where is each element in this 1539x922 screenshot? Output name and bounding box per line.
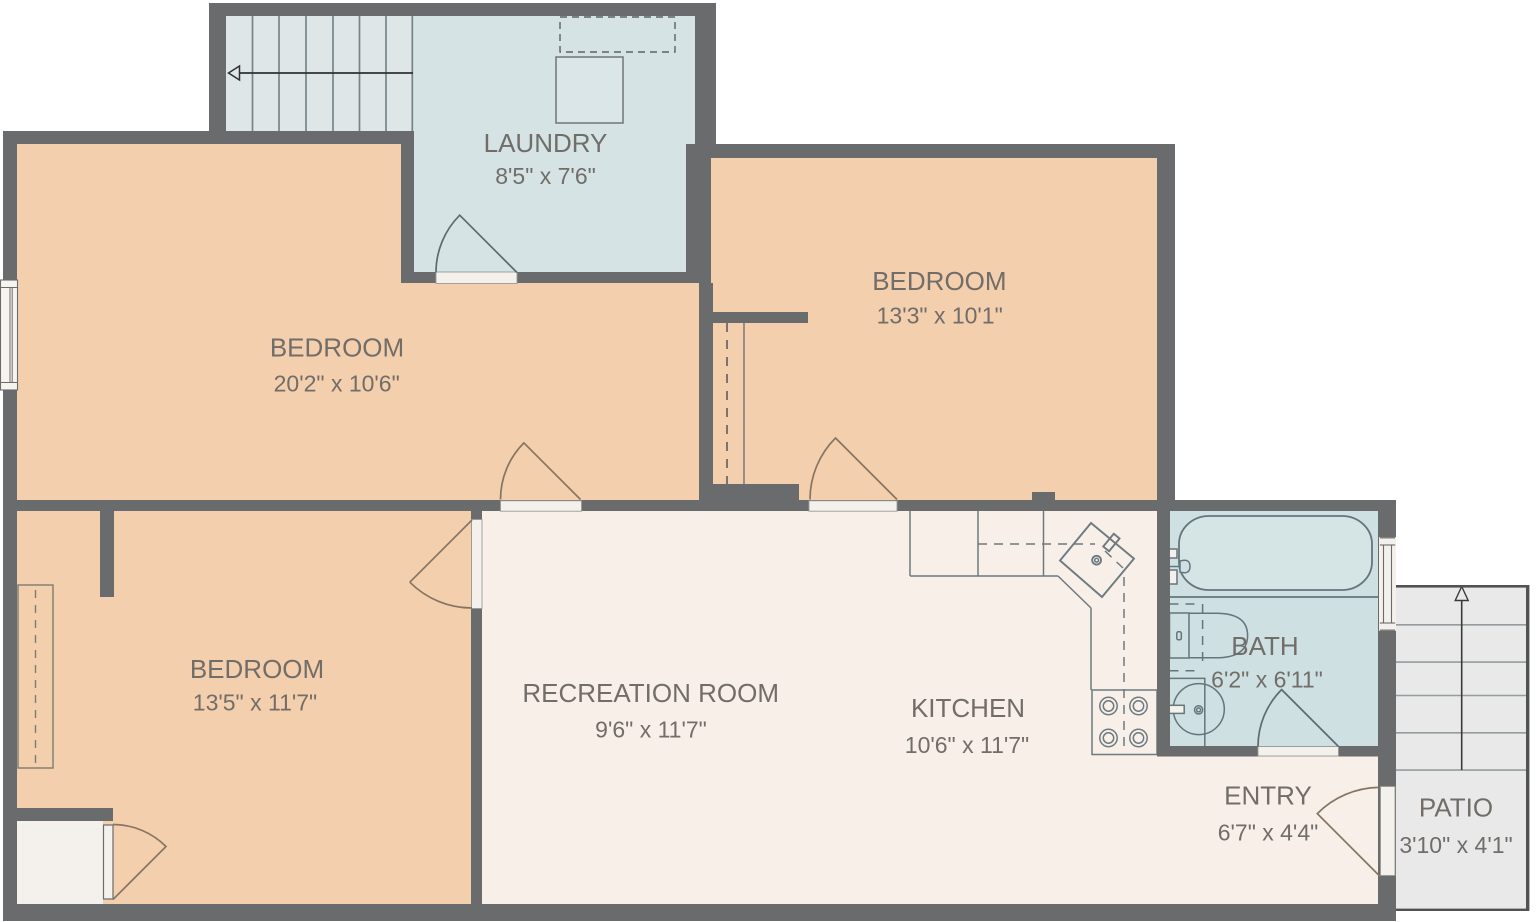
svg-text:PATIO: PATIO — [1419, 792, 1493, 822]
svg-text:KITCHEN: KITCHEN — [911, 693, 1025, 723]
svg-text:20'2" x 10'6": 20'2" x 10'6" — [274, 371, 400, 397]
svg-text:6'7" x 4'4": 6'7" x 4'4" — [1218, 820, 1319, 846]
svg-text:BATH: BATH — [1231, 631, 1298, 661]
svg-text:BEDROOM: BEDROOM — [872, 266, 1006, 296]
svg-text:13'5" x 11'7": 13'5" x 11'7" — [193, 690, 317, 716]
svg-text:10'6" x 11'7": 10'6" x 11'7" — [905, 732, 1029, 758]
svg-text:6'2" x 6'11": 6'2" x 6'11" — [1211, 667, 1323, 693]
svg-text:BEDROOM: BEDROOM — [270, 332, 404, 362]
svg-text:9'6" x 11'7": 9'6" x 11'7" — [595, 716, 707, 742]
svg-text:ENTRY: ENTRY — [1224, 781, 1312, 811]
svg-text:8'5" x 7'6": 8'5" x 7'6" — [495, 163, 596, 189]
svg-text:13'3" x 10'1": 13'3" x 10'1" — [877, 302, 1003, 328]
svg-text:LAUNDRY: LAUNDRY — [484, 128, 608, 158]
svg-text:3'10" x 4'1": 3'10" x 4'1" — [1399, 832, 1512, 858]
svg-text:BEDROOM: BEDROOM — [190, 654, 324, 684]
svg-text:RECREATION ROOM: RECREATION ROOM — [522, 678, 779, 708]
